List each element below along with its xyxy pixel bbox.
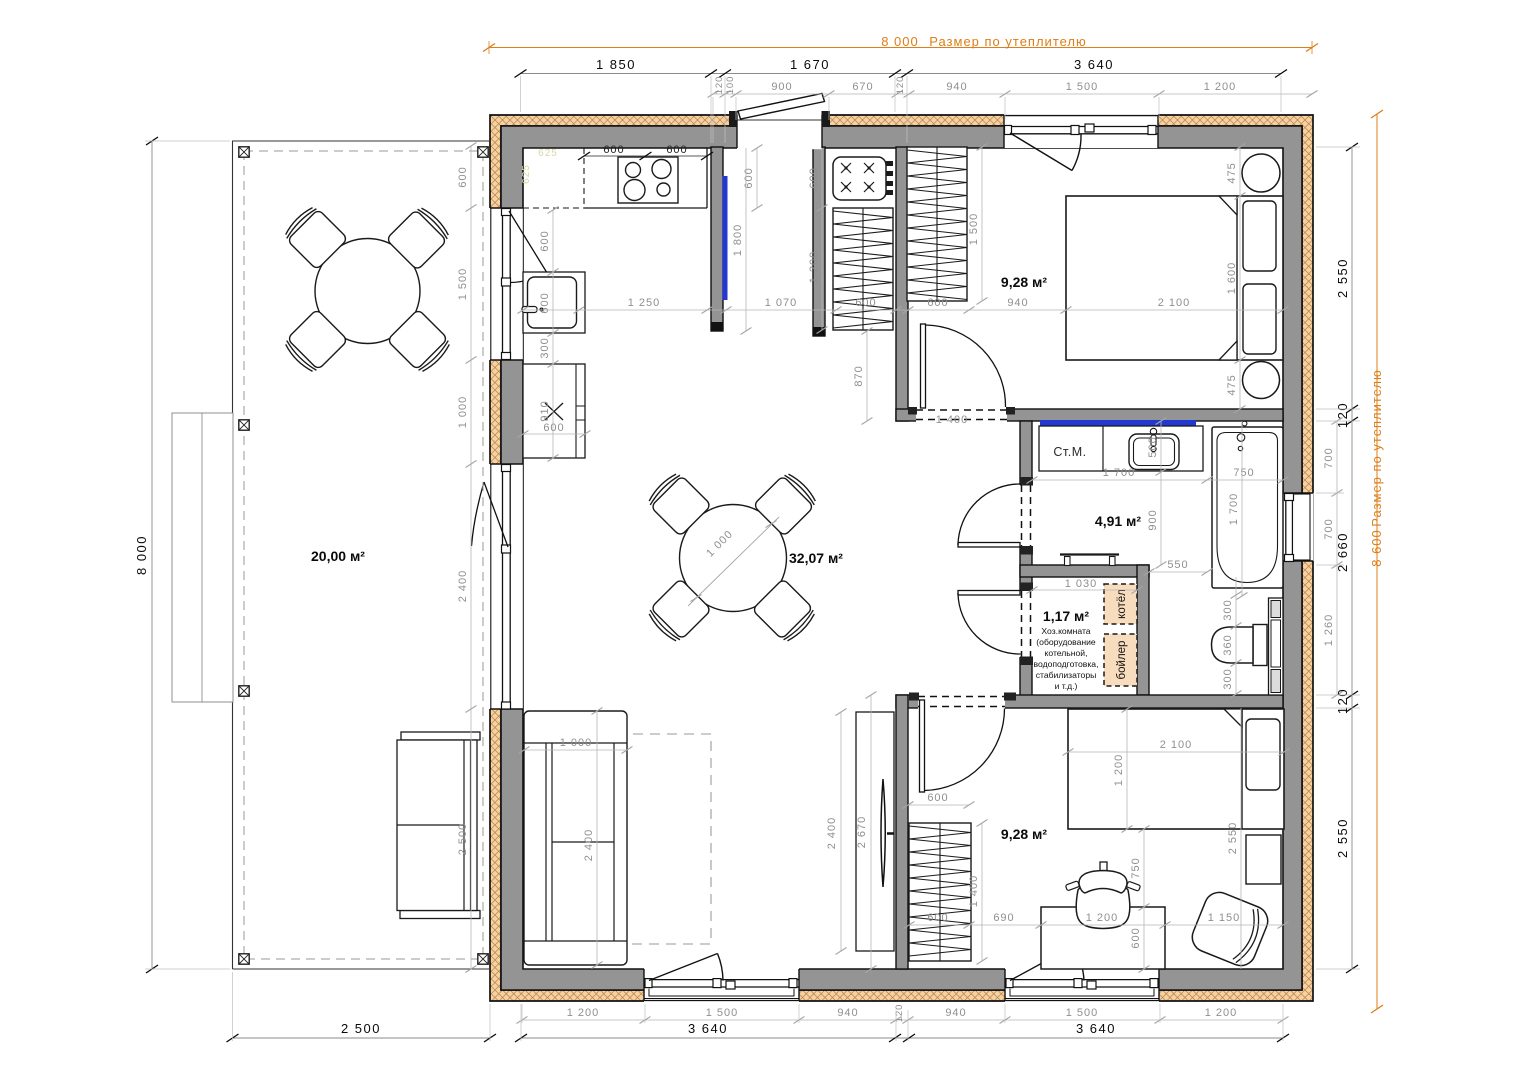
svg-text:100: 100 [725, 76, 736, 95]
svg-text:750: 750 [1130, 857, 1142, 878]
svg-text:1 500: 1 500 [706, 1007, 739, 1019]
svg-text:3 640: 3 640 [1074, 57, 1114, 72]
svg-text:625: 625 [538, 148, 558, 159]
svg-text:2 550: 2 550 [1335, 258, 1350, 298]
svg-text:8 600: 8 600 [1369, 529, 1384, 567]
svg-text:625: 625 [521, 164, 532, 184]
svg-text:600: 600 [808, 167, 820, 188]
svg-text:1 150: 1 150 [1208, 912, 1241, 924]
svg-text:120: 120 [714, 76, 725, 95]
svg-text:1 800: 1 800 [732, 224, 744, 257]
svg-text:300: 300 [1222, 599, 1234, 620]
svg-text:940: 940 [837, 1007, 858, 1019]
svg-text:1 260: 1 260 [1323, 614, 1335, 647]
svg-text:2 400: 2 400 [826, 817, 838, 850]
svg-text:550: 550 [1167, 559, 1188, 571]
svg-text:500: 500 [1147, 436, 1159, 457]
svg-text:1 200: 1 200 [567, 1007, 600, 1019]
svg-text:2 550: 2 550 [1227, 822, 1239, 855]
svg-text:700: 700 [1323, 518, 1335, 539]
svg-text:475: 475 [1226, 162, 1238, 183]
svg-text:600: 600 [539, 292, 551, 313]
svg-text:9,28 м²: 9,28 м² [1001, 826, 1047, 842]
svg-text:1 500: 1 500 [457, 268, 469, 301]
svg-text:(оборудование: (оборудование [1036, 637, 1096, 647]
svg-text:3 640: 3 640 [1076, 1021, 1116, 1036]
svg-text:120: 120 [1335, 688, 1350, 714]
svg-text:4,91 м²: 4,91 м² [1095, 513, 1141, 529]
svg-text:Хоз.комната: Хоз.комната [1041, 626, 1090, 636]
svg-text:2 100: 2 100 [1158, 297, 1191, 309]
svg-text:600: 600 [1130, 927, 1142, 948]
svg-text:670: 670 [852, 81, 873, 93]
svg-text:900: 900 [771, 81, 792, 93]
svg-text:1 670: 1 670 [790, 57, 830, 72]
svg-text:1 400: 1 400 [936, 414, 969, 426]
svg-text:600: 600 [543, 422, 564, 434]
svg-text:910: 910 [539, 400, 551, 421]
svg-text:1 030: 1 030 [1065, 578, 1098, 590]
svg-text:1 200: 1 200 [1205, 1007, 1238, 1019]
svg-text:1 700: 1 700 [1228, 493, 1240, 526]
svg-text:2 100: 2 100 [1160, 739, 1193, 751]
svg-text:2 660: 2 660 [1335, 532, 1350, 572]
svg-text:Размер по утеплителю: Размер по утеплителю [929, 34, 1087, 49]
svg-text:1 000: 1 000 [457, 396, 469, 429]
svg-text:750: 750 [1233, 467, 1254, 479]
svg-text:1 400: 1 400 [968, 875, 980, 908]
svg-text:2 400: 2 400 [583, 829, 595, 862]
svg-text:700: 700 [1323, 447, 1335, 468]
svg-text:300: 300 [539, 337, 551, 358]
svg-text:1 500: 1 500 [1066, 81, 1099, 93]
svg-text:300: 300 [1222, 668, 1234, 689]
svg-text:1 200: 1 200 [808, 251, 820, 284]
svg-text:1 500: 1 500 [1066, 1007, 1099, 1019]
svg-text:360: 360 [1222, 634, 1234, 655]
svg-text:1 200: 1 200 [1204, 81, 1237, 93]
svg-text:1 070: 1 070 [765, 297, 798, 309]
svg-text:8 000: 8 000 [881, 34, 919, 49]
svg-text:1 000: 1 000 [560, 737, 593, 749]
svg-text:600: 600 [927, 297, 948, 309]
svg-text:20,00 м²: 20,00 м² [311, 548, 365, 564]
svg-text:2 550: 2 550 [1335, 818, 1350, 858]
svg-text:120: 120 [1335, 402, 1350, 428]
svg-text:940: 940 [945, 1007, 966, 1019]
svg-text:стабилизаторы: стабилизаторы [1036, 670, 1097, 680]
svg-text:870: 870 [853, 365, 865, 386]
svg-text:водоподготовка,: водоподготовка, [1034, 659, 1099, 669]
svg-text:600: 600 [927, 792, 948, 804]
svg-text:3 640: 3 640 [688, 1021, 728, 1036]
svg-text:690: 690 [993, 912, 1014, 924]
svg-text:1 250: 1 250 [628, 297, 661, 309]
svg-text:1 200: 1 200 [1086, 912, 1119, 924]
svg-text:600: 600 [539, 230, 551, 251]
svg-text:и т.д.): и т.д.) [1055, 681, 1078, 691]
svg-text:8 000: 8 000 [134, 535, 149, 575]
svg-text:2 500: 2 500 [457, 823, 469, 856]
svg-text:2 400: 2 400 [457, 570, 469, 603]
svg-text:Размер по утеплителю: Размер по утеплителю [1369, 369, 1384, 527]
svg-text:940: 940 [1007, 297, 1028, 309]
svg-text:32,07 м²: 32,07 м² [789, 550, 843, 566]
svg-text:Ст.М.: Ст.М. [1053, 445, 1086, 459]
svg-text:9,28 м²: 9,28 м² [1001, 274, 1047, 290]
svg-text:475: 475 [1226, 374, 1238, 395]
svg-text:1 200: 1 200 [1113, 754, 1125, 787]
svg-text:1 850: 1 850 [596, 57, 636, 72]
svg-text:600: 600 [603, 144, 624, 156]
svg-text:2 670: 2 670 [856, 816, 868, 849]
svg-text:1 700: 1 700 [1103, 467, 1136, 479]
svg-text:котельной,: котельной, [1045, 648, 1088, 658]
svg-text:600: 600 [743, 167, 755, 188]
svg-text:котёл: котёл [1116, 589, 1128, 619]
svg-text:бойлер: бойлер [1116, 641, 1128, 680]
svg-text:900: 900 [1147, 509, 1159, 530]
svg-text:1 600: 1 600 [1226, 262, 1238, 295]
svg-text:120: 120 [895, 76, 906, 95]
svg-text:2 500: 2 500 [341, 1021, 381, 1036]
svg-text:600: 600 [927, 912, 948, 924]
svg-text:600: 600 [457, 166, 469, 187]
svg-text:600: 600 [666, 144, 687, 156]
svg-text:940: 940 [946, 81, 967, 93]
svg-text:1,17 м²: 1,17 м² [1043, 608, 1089, 624]
svg-text:1 500: 1 500 [968, 213, 980, 246]
svg-text:600: 600 [855, 297, 876, 309]
